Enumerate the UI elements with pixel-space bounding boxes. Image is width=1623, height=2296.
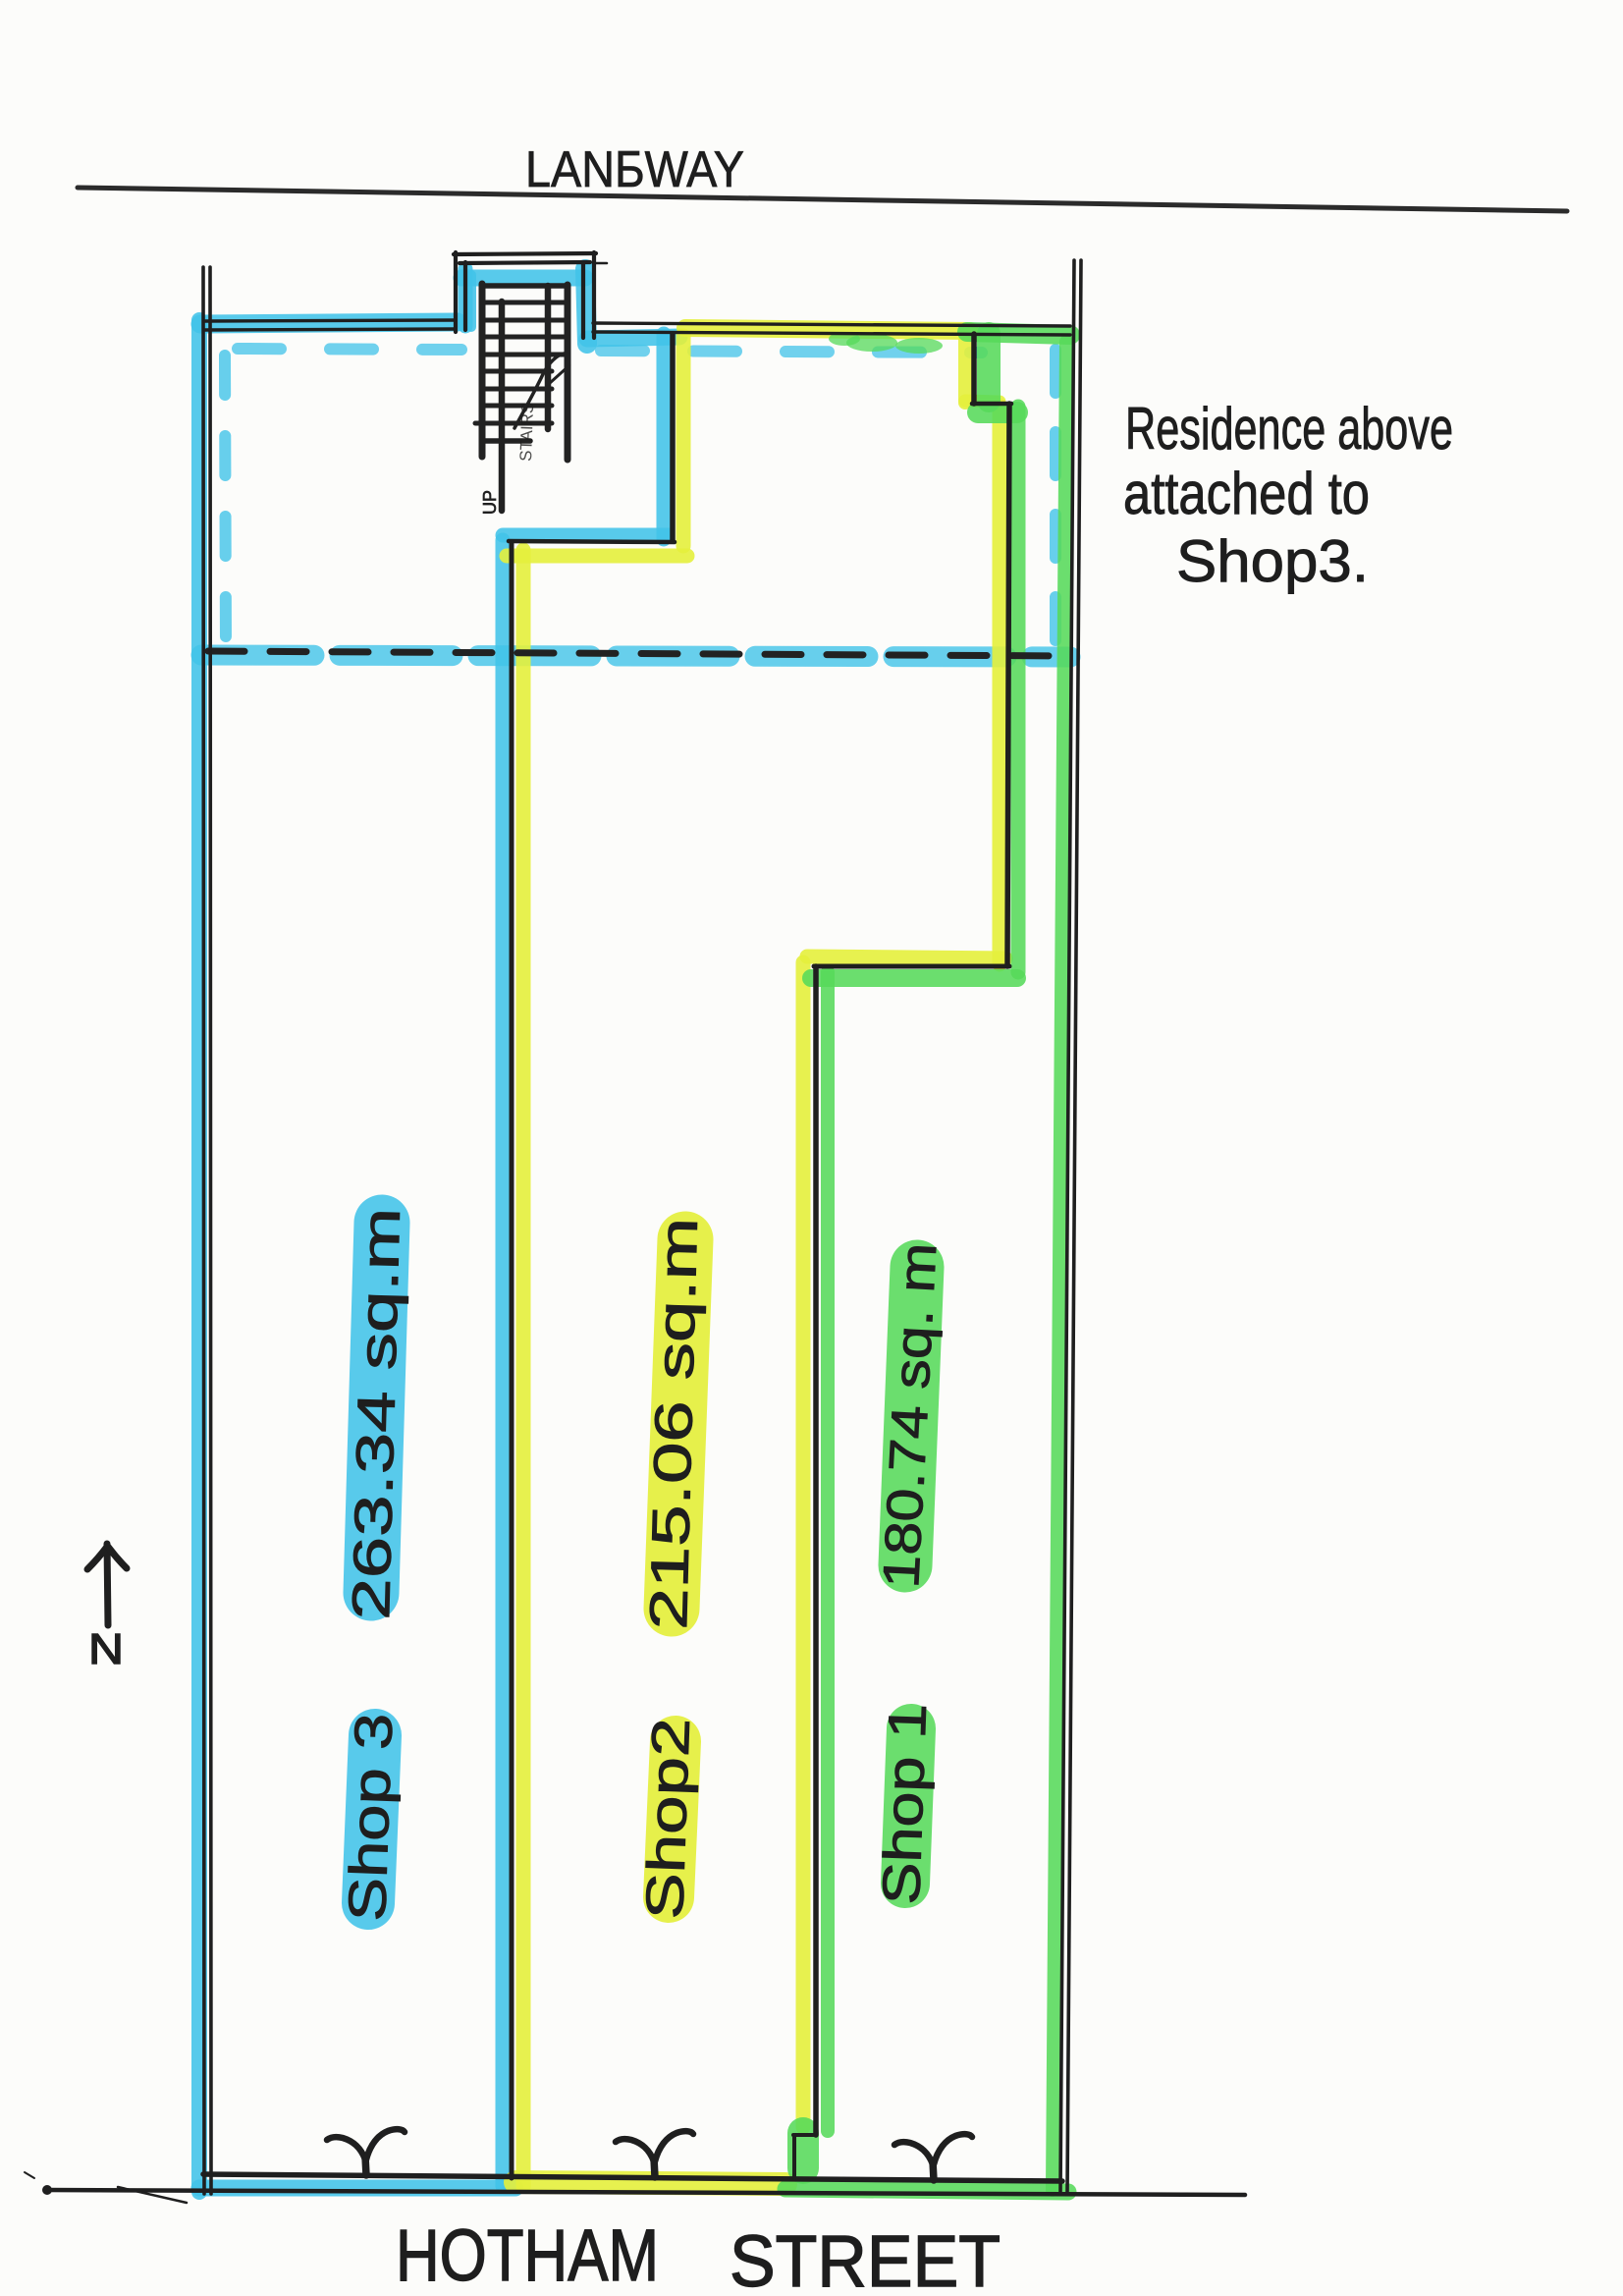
svg-text:215.06 sq.m: 215.06 sq.m xyxy=(639,1217,709,1630)
svg-text:Residence above: Residence above xyxy=(1125,396,1453,462)
svg-text:Shop3.: Shop3. xyxy=(1176,528,1369,594)
svg-text:attached to: attached to xyxy=(1123,461,1370,526)
svg-text:STREET: STREET xyxy=(730,2220,1001,2296)
svg-text:Shop 3: Shop 3 xyxy=(338,1712,404,1922)
svg-text:LANБWAY: LANБWAY xyxy=(525,141,744,198)
svg-text:263.34 sq.m: 263.34 sq.m xyxy=(342,1207,411,1620)
svg-text:N: N xyxy=(88,1625,124,1673)
svg-text:STAIRS: STAIRS xyxy=(516,402,537,462)
svg-text:Shop2: Shop2 xyxy=(635,1717,701,1920)
svg-text:HOTHAM: HOTHAM xyxy=(396,2214,659,2296)
svg-text:180.74 sq. m: 180.74 sq. m xyxy=(873,1241,947,1590)
svg-text:UP: UP xyxy=(480,490,500,515)
svg-text:Shop 1: Shop 1 xyxy=(872,1702,938,1905)
